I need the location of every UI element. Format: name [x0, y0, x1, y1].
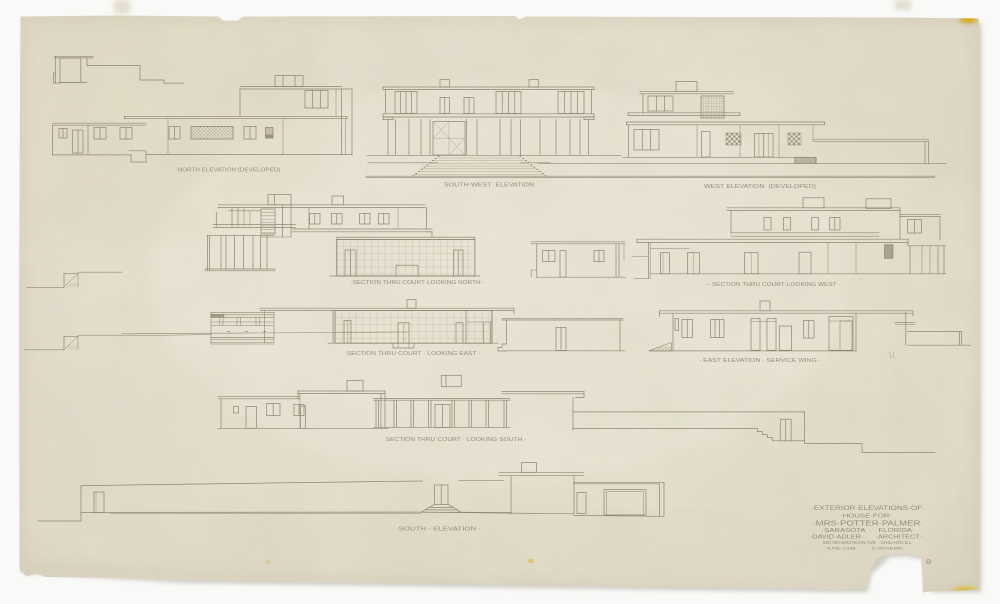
svg-text:JUNE·1946 U·SCHEME·: JUNE·1946 U·SCHEME· — [826, 546, 904, 551]
svg-text:·SECTION THRU COURT · LOOKING: ·SECTION THRU COURT · LOOKING EAST · — [345, 351, 481, 357]
svg-text:SOUTH·WEST ELEVATION: SOUTH·WEST ELEVATION — [444, 183, 534, 189]
svg-text:·NORTH ELEVATION (DEVELOPED): ·NORTH ELEVATION (DEVELOPED) — [176, 168, 281, 174]
svg-text:· EAST ELEVATION · SERVICE WIN: · EAST ELEVATION · SERVICE WING · — [699, 358, 821, 364]
svg-text:·M​RS·POTTER·PALMER·: ·M​RS·POTTER·PALMER· — [813, 519, 924, 528]
svg-text:·SECTION THRU COURT·LOOKING NO: ·SECTION THRU COURT·LOOKING NORTH · — [351, 280, 485, 286]
svg-text:SECTION THRU COURT · LOOKING S: SECTION THRU COURT · LOOKING SOUTH · — [386, 437, 527, 443]
svg-text:– SECTION THRU COURT·LOOKING W: – SECTION THRU COURT·LOOKING WEST · — [707, 282, 841, 288]
svg-text:·EXTERIOR·ELEVATIONS·OF·: ·EXTERIOR·ELEVATIONS·OF· — [811, 505, 925, 512]
svg-text:B: B — [927, 559, 930, 564]
svg-text:WEST ELEVATION (DEVELOPED): WEST ELEVATION (DEVELOPED) — [704, 184, 816, 190]
svg-text:520 NO·MICHIGAN AVE · CHICAGO·: 520 NO·MICHIGAN AVE · CHICAGO·ILL· — [823, 540, 913, 545]
svg-text:·SOUTH · ELEVATION ·: ·SOUTH · ELEVATION · — [396, 527, 481, 533]
svg-text:·SARASOTA FLORIDA·: ·SARASOTA FLORIDA· — [822, 528, 915, 534]
